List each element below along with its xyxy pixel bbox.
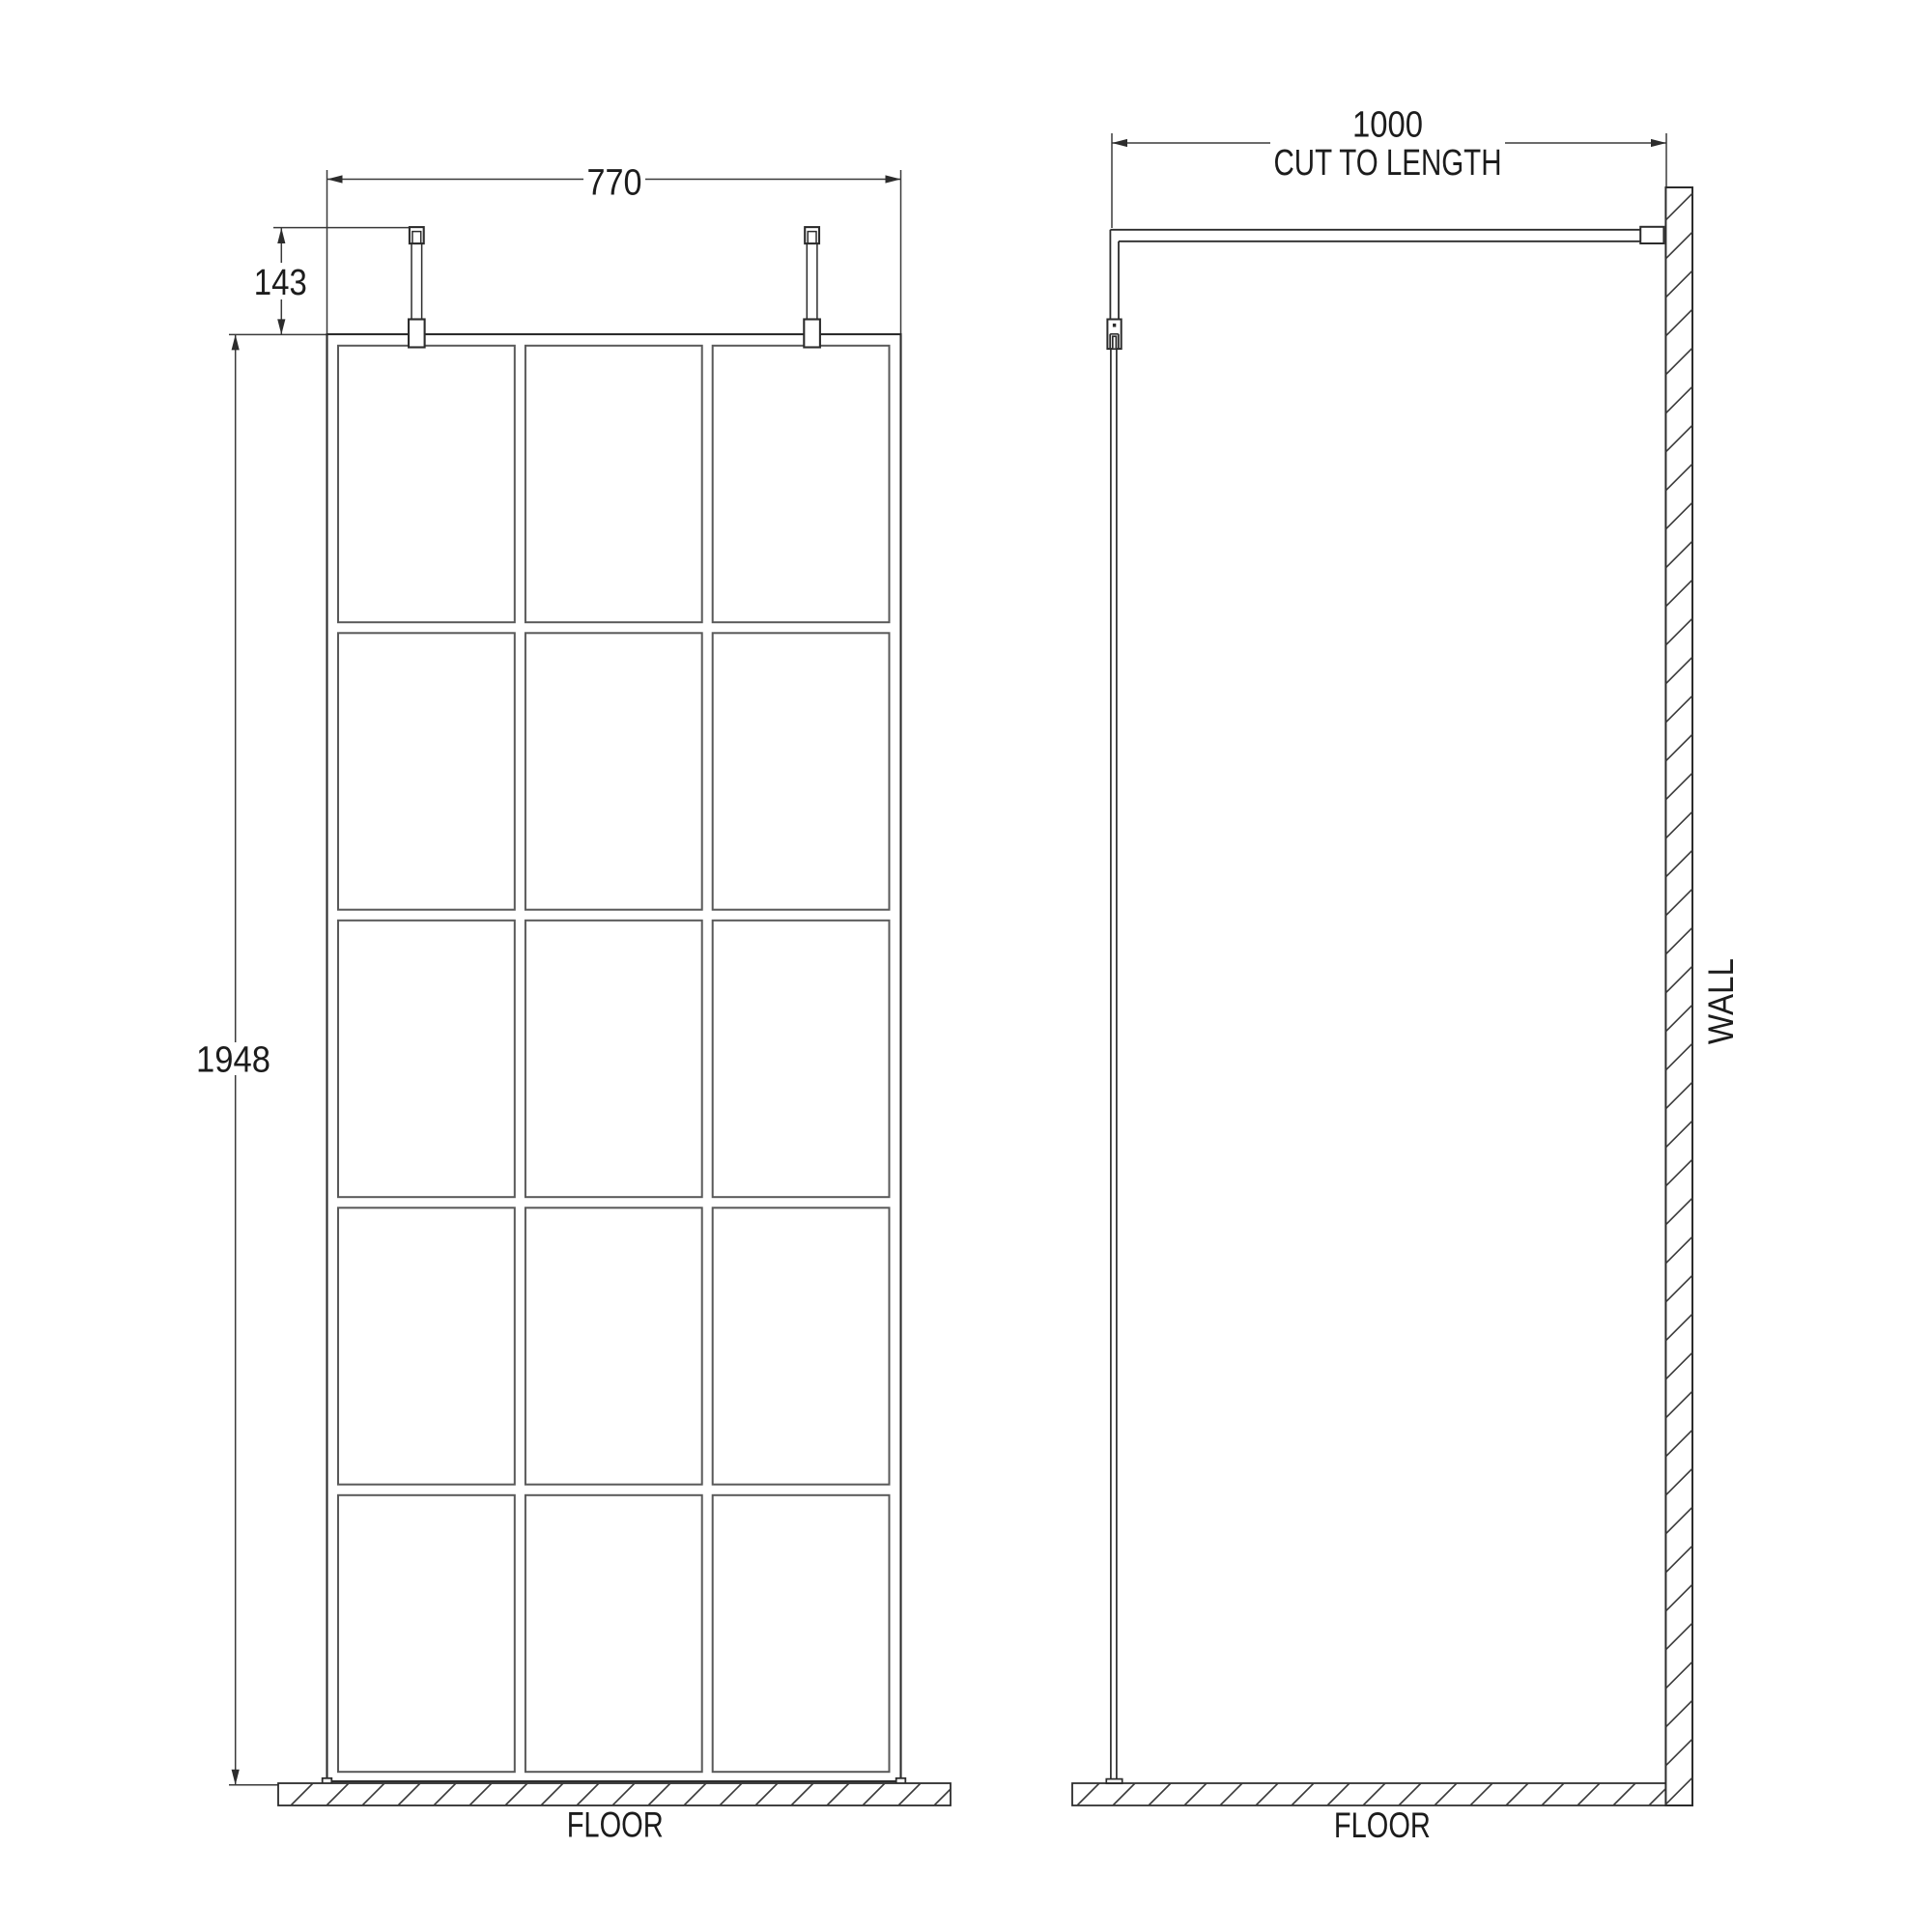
svg-text:770: 770 (587, 163, 642, 204)
svg-text:CUT TO LENGTH: CUT TO LENGTH (1274, 143, 1502, 184)
svg-text:FLOOR: FLOOR (567, 1805, 664, 1845)
svg-text:1000: 1000 (1352, 104, 1423, 145)
svg-text:FLOOR: FLOOR (1334, 1805, 1431, 1845)
svg-text:143: 143 (254, 263, 307, 303)
svg-text:WALL: WALL (1701, 958, 1741, 1044)
svg-text:1948: 1948 (196, 1040, 270, 1081)
